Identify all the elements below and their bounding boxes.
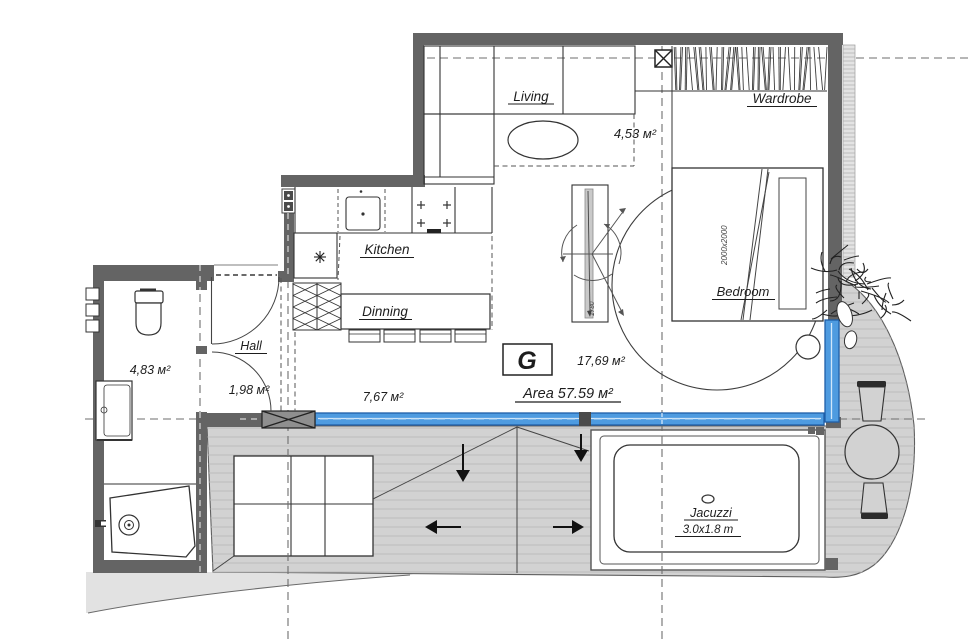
svg-text:Area 57.59 м²: Area 57.59 м² — [522, 386, 614, 402]
svg-text:4,53 м²: 4,53 м² — [614, 126, 657, 141]
svg-text:Dinning: Dinning — [362, 304, 408, 319]
svg-text:4,83 м²: 4,83 м² — [130, 363, 171, 377]
svg-text:2000х2000: 2000х2000 — [720, 225, 729, 266]
svg-text:Wardrobe: Wardrobe — [752, 91, 811, 106]
svg-text:7,67 м²: 7,67 м² — [363, 390, 404, 404]
svg-text:1,98 м²: 1,98 м² — [229, 383, 270, 397]
svg-text:17,69 м²: 17,69 м² — [577, 354, 625, 368]
svg-text:1780: 1780 — [589, 301, 596, 316]
svg-text:Living: Living — [513, 89, 549, 104]
svg-text:Jacuzzi: Jacuzzi — [689, 506, 733, 520]
svg-text:Bedroom: Bedroom — [717, 284, 770, 299]
svg-text:3.0х1.8 m: 3.0х1.8 m — [683, 524, 734, 536]
svg-text:Kitchen: Kitchen — [364, 242, 409, 257]
svg-text:G: G — [517, 347, 536, 375]
svg-text:Hall: Hall — [240, 339, 263, 353]
